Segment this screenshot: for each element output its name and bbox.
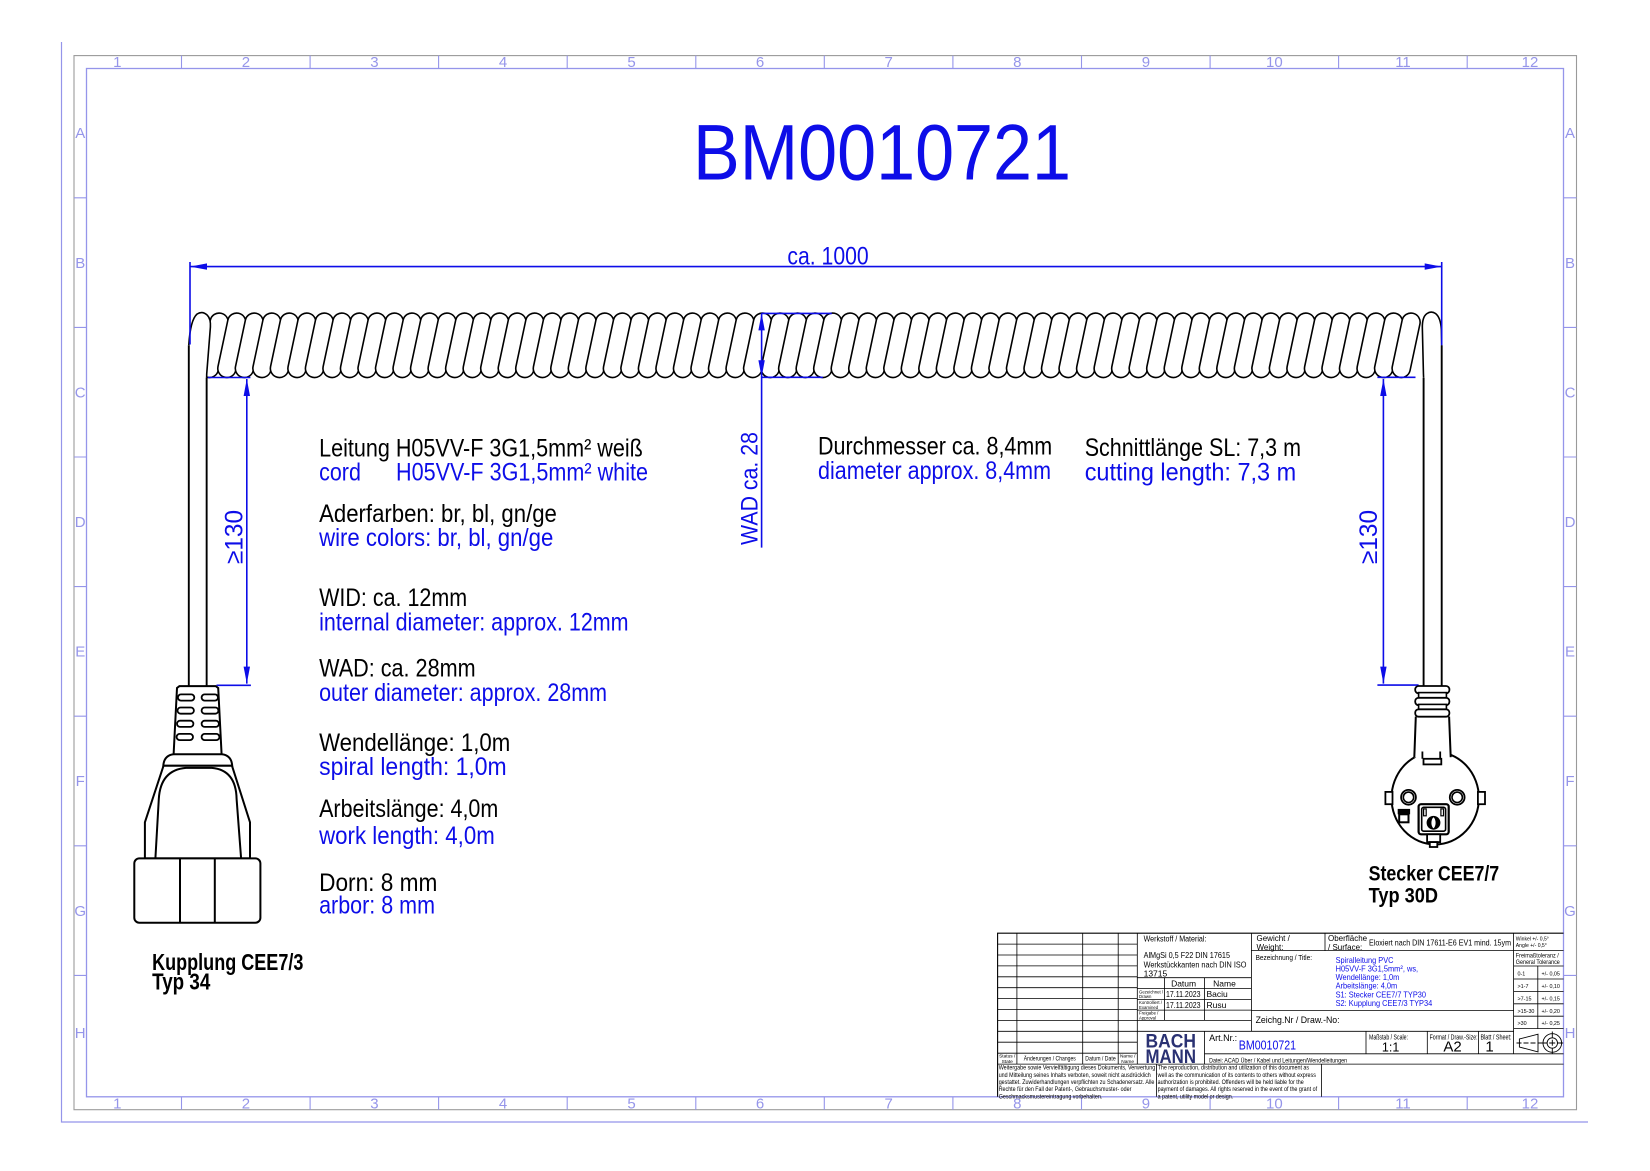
svg-text:+/- 0,25: +/- 0,25	[1542, 1021, 1560, 1027]
svg-text:0-1: 0-1	[1518, 972, 1526, 978]
svg-text:A: A	[1565, 125, 1575, 142]
svg-text:Rusu: Rusu	[1207, 1000, 1227, 1010]
svg-text:H05VV-F 3G1,5mm² white: H05VV-F 3G1,5mm² white	[396, 459, 648, 487]
svg-text:11: 11	[1395, 1095, 1411, 1112]
svg-text:Name /: Name /	[1120, 1054, 1136, 1060]
svg-text:Drawn: Drawn	[1139, 994, 1152, 999]
svg-text:Typ 34: Typ 34	[152, 969, 210, 995]
svg-text:A: A	[75, 125, 85, 142]
svg-text:1: 1	[113, 1095, 121, 1112]
svg-text:8: 8	[1013, 54, 1021, 71]
svg-text:5: 5	[627, 54, 635, 71]
svg-text:Freimaßtoleranz /: Freimaßtoleranz /	[1516, 953, 1559, 959]
svg-text:und Mitteilung seines Inhalts: und Mitteilung seines Inhalts verboten, …	[999, 1072, 1152, 1079]
svg-text:>30: >30	[1518, 1021, 1527, 1027]
svg-text:Datum / Date: Datum / Date	[1085, 1057, 1116, 1063]
svg-text:7: 7	[885, 54, 893, 71]
svg-text:17.11.2023: 17.11.2023	[1166, 989, 1201, 999]
svg-text:Datei: ACAD Über / Kabel und L: Datei: ACAD Über / Kabel und Leitungen/W…	[1209, 1056, 1347, 1064]
svg-text:1: 1	[113, 54, 121, 71]
svg-text:Werkstoff / Material:: Werkstoff / Material:	[1144, 935, 1207, 944]
svg-text:A2: A2	[1443, 1039, 1461, 1056]
svg-text:H: H	[75, 1025, 86, 1042]
svg-text:17.11.2023: 17.11.2023	[1166, 1000, 1201, 1010]
svg-text:+/- 0,05: +/- 0,05	[1542, 972, 1560, 978]
svg-text:work length: 4,0m: work length: 4,0m	[318, 822, 495, 850]
svg-text:The reproduction, distribution: The reproduction, distribution and utili…	[1158, 1065, 1310, 1072]
svg-text:+/- 0,10: +/- 0,10	[1542, 984, 1560, 990]
svg-text:3: 3	[370, 1095, 378, 1112]
svg-text:cutting length: 7,3 m: cutting length: 7,3 m	[1085, 459, 1297, 487]
svg-text:12: 12	[1522, 1095, 1539, 1112]
svg-text:H: H	[1565, 1025, 1576, 1042]
svg-text:spiral length: 1,0m: spiral length: 1,0m	[319, 753, 507, 781]
svg-text:cord: cord	[319, 459, 361, 487]
svg-text:Winkel +/- 0,5°: Winkel +/- 0,5°	[1516, 937, 1549, 943]
svg-text:1:1: 1:1	[1382, 1040, 1399, 1054]
svg-text:Eloxiert nach DIN 17611-E6 EV1: Eloxiert nach DIN 17611-E6 EV1 mind. 15y…	[1369, 937, 1511, 947]
svg-text:F: F	[76, 773, 85, 790]
svg-text:arbor: 8 mm: arbor: 8 mm	[319, 892, 435, 920]
svg-text:internal diameter: approx. 12m: internal diameter: approx. 12mm	[319, 609, 628, 637]
svg-text:≥130: ≥130	[221, 510, 249, 564]
svg-text:S2: Kupplung CEE7/3 TYP34: S2: Kupplung CEE7/3 TYP34	[1336, 998, 1433, 1008]
svg-text:payment of damages. All rights: payment of damages. All rights reserved …	[1158, 1086, 1318, 1093]
svg-text:6: 6	[756, 1095, 764, 1112]
svg-text:2: 2	[242, 1095, 250, 1112]
svg-text:D: D	[1565, 514, 1576, 531]
svg-text:Arbeitslänge: 4,0m: Arbeitslänge: 4,0m	[319, 795, 498, 823]
svg-text:BM0010721: BM0010721	[693, 108, 1071, 196]
svg-text:ca. 1000: ca. 1000	[787, 243, 868, 271]
svg-text:G: G	[1564, 903, 1576, 920]
svg-text:>7-15: >7-15	[1518, 996, 1532, 1002]
svg-text:diameter approx. 8,4mm: diameter approx. 8,4mm	[818, 457, 1051, 485]
svg-text:12: 12	[1522, 54, 1539, 71]
svg-text:C: C	[1565, 384, 1576, 401]
svg-text:9: 9	[1142, 54, 1150, 71]
svg-text:G: G	[74, 903, 86, 920]
svg-text:Weitergabe sowie Vervielfältig: Weitergabe sowie Vervielfältigung dieses…	[999, 1065, 1156, 1072]
svg-text:Baciu: Baciu	[1207, 989, 1229, 999]
svg-text:Art.Nr.:: Art.Nr.:	[1209, 1033, 1237, 1043]
svg-text:+/- 0,20: +/- 0,20	[1542, 1009, 1560, 1015]
svg-text:AlMgSi 0,5 F22 DIN 17615: AlMgSi 0,5 F22 DIN 17615	[1144, 950, 1231, 960]
svg-text:+/- 0,15: +/- 0,15	[1542, 996, 1560, 1002]
svg-text:Name: Name	[1213, 978, 1236, 988]
svg-text:>15-30: >15-30	[1518, 1009, 1535, 1015]
svg-text:5: 5	[627, 1095, 635, 1112]
svg-text:B: B	[1565, 255, 1575, 272]
svg-text:gestattet. Zuwiderhandlungen v: gestattet. Zuwiderhandlungen verpflichte…	[999, 1079, 1155, 1086]
svg-text:>1-7: >1-7	[1518, 984, 1529, 990]
svg-text:/ Surface:: / Surface:	[1328, 943, 1362, 952]
svg-text:BM0010721: BM0010721	[1239, 1037, 1296, 1052]
svg-text:Zeichg.Nr / Draw.-No:: Zeichg.Nr / Draw.-No:	[1256, 1015, 1340, 1025]
svg-text:Rechte für den Fall der Patent: Rechte für den Fall der Patent-, Gebrauc…	[999, 1086, 1132, 1093]
svg-text:4: 4	[499, 1095, 507, 1112]
svg-text:outer diameter: approx. 28mm: outer diameter: approx. 28mm	[319, 679, 607, 707]
svg-text:Änderungen / Changes: Änderungen / Changes	[1024, 1056, 1076, 1063]
svg-text:Status /: Status /	[999, 1054, 1016, 1060]
svg-text:Weight:: Weight:	[1257, 943, 1284, 952]
svg-text:C: C	[75, 384, 86, 401]
svg-text:6: 6	[756, 54, 764, 71]
svg-text:≥130: ≥130	[1355, 510, 1383, 564]
svg-text:Bezeichnung / Title:: Bezeichnung / Title:	[1256, 953, 1312, 962]
svg-text:1: 1	[1485, 1039, 1493, 1056]
svg-text:Typ 30D: Typ 30D	[1369, 882, 1438, 907]
svg-text:7: 7	[885, 1095, 893, 1112]
svg-text:authorization is prohibited. O: authorization is prohibited. Offenders w…	[1158, 1079, 1305, 1086]
svg-text:11: 11	[1395, 54, 1411, 71]
svg-text:Examined: Examined	[1139, 1005, 1159, 1010]
svg-text:Geschmacksmustereintragung vor: Geschmacksmustereintragung vorbehalten.	[999, 1093, 1103, 1100]
svg-text:well as the communication of i: well as the communication of its content…	[1157, 1072, 1316, 1079]
svg-text:4: 4	[499, 54, 507, 71]
svg-text:Datum: Datum	[1171, 978, 1196, 988]
svg-text:a patent, utility model or des: a patent, utility model or design.	[1158, 1093, 1234, 1100]
svg-text:D: D	[75, 514, 86, 531]
svg-text:3: 3	[370, 54, 378, 71]
svg-text:13715: 13715	[1144, 969, 1168, 979]
svg-text:Approval: Approval	[1139, 1015, 1156, 1020]
svg-text:General Tolerance: General Tolerance	[1516, 960, 1561, 966]
svg-text:E: E	[75, 644, 85, 661]
svg-text:F: F	[1565, 773, 1574, 790]
svg-text:WAD ca. 28: WAD ca. 28	[737, 432, 764, 545]
svg-text:E: E	[1565, 644, 1575, 661]
svg-text:9: 9	[1142, 1095, 1150, 1112]
svg-text:10: 10	[1266, 54, 1283, 71]
svg-text:2: 2	[242, 54, 250, 71]
svg-text:Angle +/- 0,5°: Angle +/- 0,5°	[1516, 943, 1547, 949]
svg-text:10: 10	[1266, 1095, 1283, 1112]
svg-text:wire colors: br, bl, gn/ge: wire colors: br, bl, gn/ge	[318, 524, 553, 552]
svg-text:B: B	[75, 255, 85, 272]
